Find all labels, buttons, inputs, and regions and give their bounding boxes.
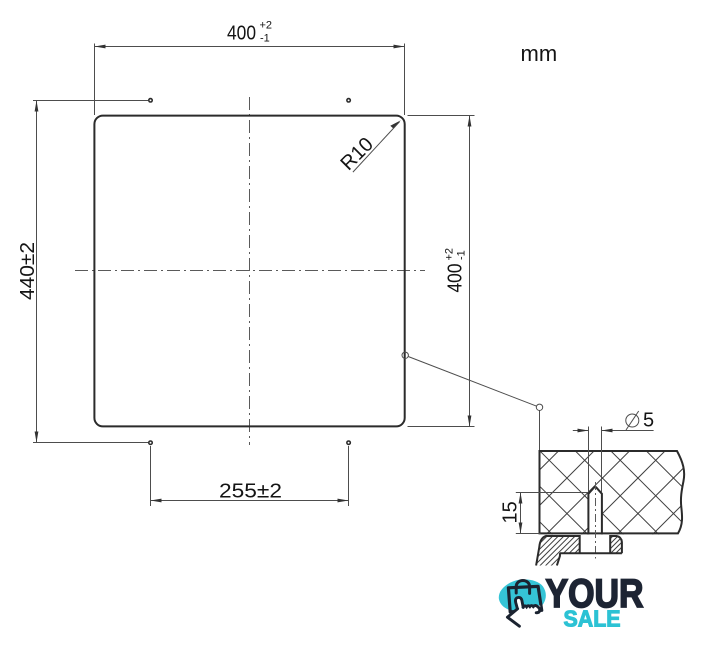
svg-text:15: 15: [499, 501, 521, 523]
svg-text:+2: +2: [444, 248, 456, 261]
svg-text:440±2: 440±2: [17, 242, 39, 300]
svg-text:5: 5: [643, 410, 654, 432]
svg-text:255±2: 255±2: [219, 480, 282, 502]
svg-text:-1: -1: [456, 250, 468, 260]
svg-text:-1: -1: [260, 32, 270, 44]
svg-text:SALE: SALE: [564, 606, 621, 632]
svg-text:mm: mm: [521, 41, 558, 66]
svg-text:400: 400: [445, 264, 467, 293]
svg-text:+2: +2: [260, 19, 273, 31]
svg-text:400: 400: [227, 23, 256, 45]
